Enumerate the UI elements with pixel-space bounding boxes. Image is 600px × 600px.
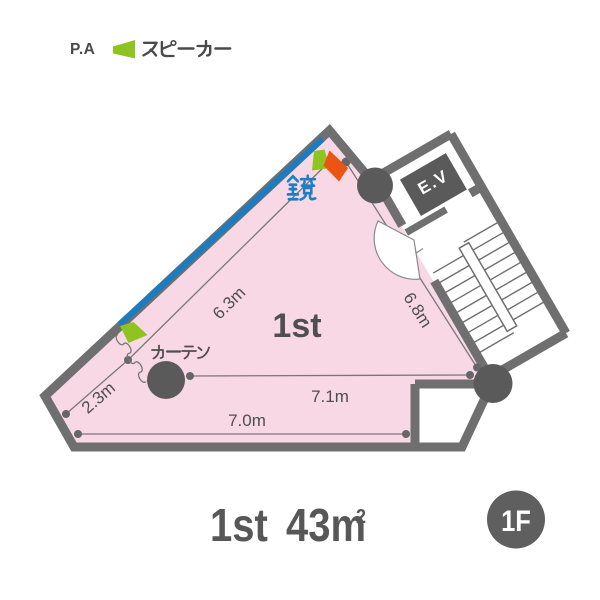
svg-text:1st: 1st: [272, 307, 321, 345]
svg-text:7.1m: 7.1m: [311, 387, 349, 406]
svg-text:1F: 1F: [501, 504, 531, 537]
svg-text:43m: 43m: [286, 500, 366, 551]
svg-text:P.A: P.A: [70, 41, 95, 58]
svg-text:2: 2: [356, 506, 366, 528]
svg-text:1st: 1st: [210, 500, 268, 551]
svg-text:7.0m: 7.0m: [228, 411, 266, 430]
